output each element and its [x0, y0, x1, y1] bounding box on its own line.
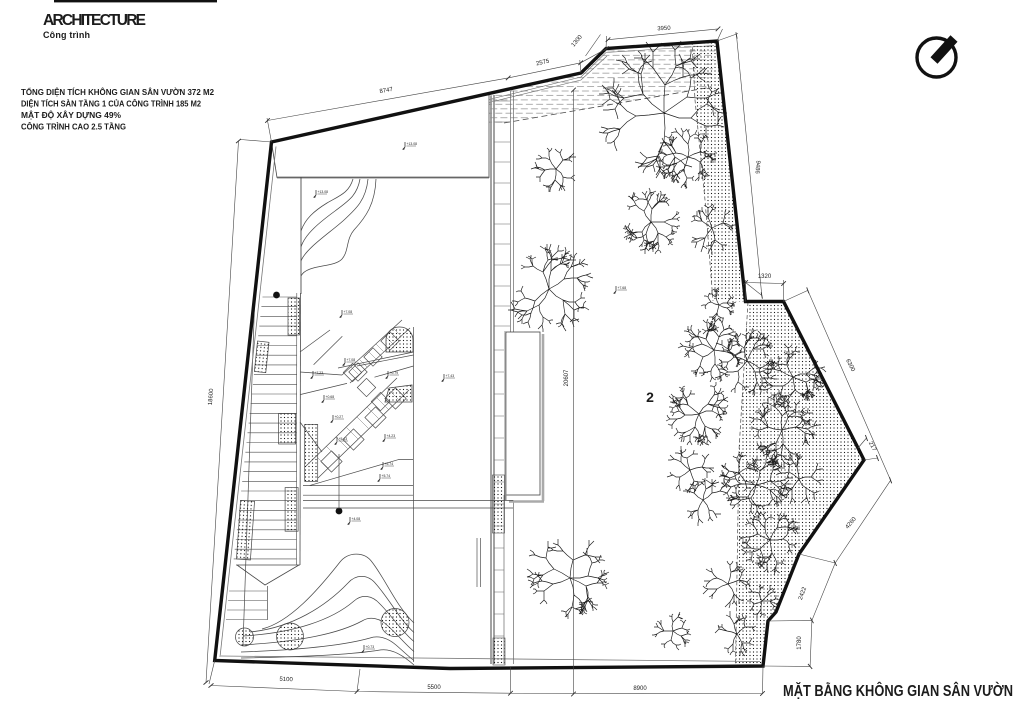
svg-text:MẶT BẰNG KHÔNG GIAN SÂN VƯỜN: MẶT BẰNG KHÔNG GIAN SÂN VƯỜN	[783, 682, 1013, 700]
svg-text:18600: 18600	[208, 388, 215, 406]
svg-text:+4.08: +4.08	[352, 517, 361, 521]
svg-text:8900: 8900	[633, 686, 647, 692]
svg-text:+7.08: +7.08	[347, 358, 356, 362]
svg-text:+7.43: +7.43	[446, 374, 455, 378]
svg-text:ARCHITECTURE: ARCHITECTURE	[43, 12, 146, 29]
svg-text:Công trình: Công trình	[43, 30, 90, 40]
svg-text:3950: 3950	[657, 26, 671, 33]
svg-text:+13.08: +13.08	[407, 142, 418, 146]
svg-text:+7.23: +7.23	[315, 371, 324, 375]
svg-text:+0.27: +0.27	[335, 415, 344, 419]
svg-text:+0.73: +0.73	[366, 645, 375, 649]
svg-text:DIỆN TÍCH SÀN TẦNG 1 CỦA CÔNG: DIỆN TÍCH SÀN TẦNG 1 CỦA CÔNG TRÌNH 185 …	[21, 98, 201, 109]
svg-text:+7.68: +7.68	[618, 286, 627, 290]
svg-text:1780: 1780	[797, 636, 803, 650]
svg-text:+7.08: +7.08	[344, 310, 353, 314]
svg-text:+0.79: +0.79	[390, 371, 399, 375]
svg-text:+5.43: +5.43	[339, 437, 348, 441]
svg-text:5100: 5100	[279, 677, 293, 684]
svg-text:20607: 20607	[564, 369, 570, 386]
svg-text:+5.74: +5.74	[385, 462, 394, 466]
svg-text:1320: 1320	[758, 274, 772, 280]
svg-text:9486: 9486	[753, 160, 760, 174]
svg-text:+4.23: +4.23	[387, 434, 396, 438]
svg-text:2: 2	[646, 389, 654, 405]
svg-text:CÔNG TRÌNH CAO 2.5 TẦNG: CÔNG TRÌNH CAO 2.5 TẦNG	[21, 121, 126, 132]
svg-text:+13.08: +13.08	[318, 190, 329, 194]
svg-text:+0.68: +0.68	[326, 395, 335, 399]
svg-text:TỔNG DIỆN TÍCH KHÔNG GIAN SÂN: TỔNG DIỆN TÍCH KHÔNG GIAN SÂN VƯỜN 372 M…	[21, 86, 214, 97]
svg-text:MẬT ĐỘ XÂY DỰNG 49%: MẬT ĐỘ XÂY DỰNG 49%	[21, 109, 121, 120]
svg-text:5500: 5500	[427, 685, 441, 691]
svg-text:+5.74: +5.74	[382, 474, 391, 478]
